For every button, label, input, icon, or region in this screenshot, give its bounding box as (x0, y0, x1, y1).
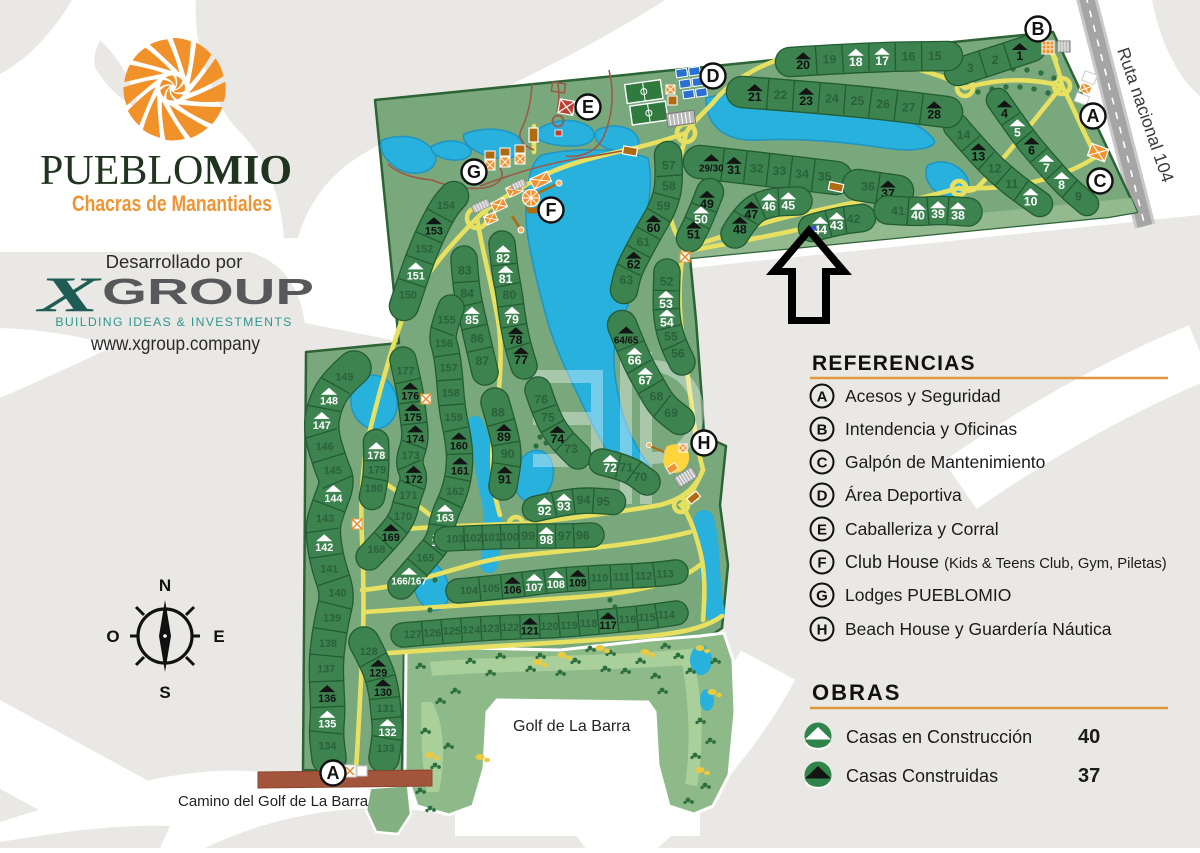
svg-text:7: 7 (1043, 161, 1050, 175)
svg-text:72: 72 (603, 461, 617, 475)
svg-text:179: 179 (368, 465, 386, 477)
svg-text:Acesos y Seguridad: Acesos y Seguridad (845, 386, 1001, 406)
svg-text:96: 96 (576, 528, 590, 542)
svg-text:53: 53 (659, 297, 673, 311)
svg-text:40: 40 (1078, 726, 1100, 748)
svg-text:159: 159 (445, 412, 463, 424)
svg-text:73: 73 (564, 442, 578, 456)
svg-text:142: 142 (315, 542, 333, 554)
svg-text:85: 85 (465, 313, 479, 327)
svg-text:155: 155 (437, 315, 455, 327)
svg-text:OBRAS: OBRAS (812, 680, 901, 705)
svg-text:174: 174 (406, 433, 424, 445)
svg-text:141: 141 (320, 563, 338, 575)
svg-text:139: 139 (323, 613, 341, 625)
svg-text:A: A (817, 389, 828, 406)
svg-text:92: 92 (538, 504, 552, 518)
svg-text:Golf de La Barra: Golf de La Barra (513, 718, 631, 735)
svg-text:Lodges PUEBLOMIO: Lodges PUEBLOMIO (845, 585, 1011, 605)
svg-text:74: 74 (551, 432, 565, 446)
svg-text:BUILDING IDEAS & INVESTMENTS: BUILDING IDEAS & INVESTMENTS (55, 315, 292, 329)
svg-text:140: 140 (328, 588, 346, 600)
svg-text:40: 40 (911, 209, 925, 223)
svg-text:19: 19 (823, 53, 837, 67)
svg-text:170: 170 (394, 511, 412, 523)
svg-text:149: 149 (335, 372, 353, 384)
svg-text:8: 8 (1058, 178, 1065, 192)
svg-text:G: G (467, 162, 481, 182)
svg-text:128: 128 (360, 646, 378, 658)
svg-text:B: B (817, 422, 828, 439)
svg-text:84: 84 (460, 286, 474, 300)
svg-text:29/30: 29/30 (699, 163, 724, 174)
svg-text:4: 4 (1001, 106, 1008, 120)
svg-text:81: 81 (499, 272, 513, 286)
svg-text:104: 104 (460, 585, 478, 597)
svg-text:23: 23 (799, 94, 813, 108)
svg-text:25: 25 (851, 94, 865, 108)
svg-text:176: 176 (401, 391, 419, 403)
svg-text:177: 177 (396, 366, 414, 378)
svg-text:A: A (1087, 106, 1100, 126)
svg-text:D: D (817, 488, 828, 505)
svg-text:38: 38 (951, 208, 965, 222)
svg-text:157: 157 (440, 363, 458, 375)
svg-text:144: 144 (324, 493, 342, 505)
svg-text:20: 20 (796, 58, 810, 72)
svg-text:115: 115 (638, 612, 655, 624)
svg-text:60: 60 (647, 221, 661, 235)
svg-text:Área Deportiva: Área Deportiva (845, 485, 962, 505)
svg-text:168: 168 (367, 544, 385, 556)
svg-text:91: 91 (498, 472, 512, 486)
svg-text:146: 146 (316, 441, 334, 453)
svg-text:178: 178 (367, 450, 385, 462)
svg-text:45: 45 (781, 198, 795, 212)
svg-text:147: 147 (313, 420, 331, 432)
svg-text:113: 113 (656, 568, 673, 580)
svg-text:82: 82 (496, 251, 510, 265)
svg-text:110: 110 (591, 572, 608, 584)
svg-text:59: 59 (657, 199, 671, 213)
svg-text:111: 111 (613, 571, 630, 583)
svg-text:98: 98 (540, 533, 554, 547)
svg-text:Casas en Construcción: Casas en Construcción (846, 727, 1032, 747)
svg-text:135: 135 (318, 719, 336, 731)
svg-text:154: 154 (437, 200, 455, 212)
svg-text:E: E (213, 627, 224, 646)
svg-text:32: 32 (750, 162, 764, 176)
svg-text:62: 62 (627, 258, 641, 272)
svg-text:46: 46 (762, 200, 776, 214)
svg-text:129: 129 (369, 668, 387, 680)
svg-text:13: 13 (972, 149, 986, 163)
svg-text:133: 133 (377, 743, 395, 755)
svg-text:47: 47 (744, 208, 758, 222)
svg-text:43: 43 (830, 218, 844, 232)
svg-text:37: 37 (1078, 765, 1100, 787)
svg-text:169: 169 (382, 532, 400, 544)
svg-text:80: 80 (503, 288, 517, 302)
svg-text:PUEBLOMIO: PUEBLOMIO (40, 148, 292, 194)
svg-text:E: E (582, 97, 594, 117)
svg-text:100: 100 (501, 532, 519, 544)
svg-text:86: 86 (470, 331, 484, 345)
svg-text:69: 69 (664, 406, 678, 420)
svg-text:162: 162 (446, 486, 464, 498)
svg-text:9: 9 (1075, 190, 1082, 204)
svg-text:Camino del Golf de La Barra: Camino del Golf de La Barra (178, 793, 369, 810)
svg-text:28: 28 (927, 107, 941, 121)
svg-text:121: 121 (521, 626, 539, 638)
svg-text:15: 15 (928, 49, 942, 63)
svg-text:103: 103 (446, 534, 464, 546)
svg-text:134: 134 (318, 740, 336, 752)
svg-text:www.xgroup.company: www.xgroup.company (90, 334, 260, 355)
svg-text:175: 175 (404, 412, 422, 424)
svg-text:95: 95 (596, 494, 610, 508)
svg-text:11: 11 (1005, 177, 1018, 191)
svg-text:158: 158 (442, 387, 460, 399)
svg-text:54: 54 (660, 315, 674, 329)
svg-text:125: 125 (443, 626, 461, 638)
svg-text:Galpón de Mantenimiento: Galpón de Mantenimiento (845, 452, 1045, 472)
svg-text:2: 2 (992, 53, 999, 67)
svg-text:127: 127 (404, 629, 422, 641)
svg-text:F: F (817, 555, 826, 572)
svg-text:138: 138 (319, 638, 337, 650)
svg-text:61: 61 (636, 235, 650, 249)
svg-text:132: 132 (378, 727, 396, 739)
svg-text:Desarrollado por: Desarrollado por (106, 251, 243, 272)
svg-text:Casas Construidas: Casas Construidas (846, 766, 998, 786)
svg-text:1: 1 (1016, 49, 1023, 63)
svg-text:36: 36 (861, 180, 875, 194)
svg-text:33: 33 (773, 164, 787, 178)
svg-text:56: 56 (671, 347, 685, 361)
svg-text:90: 90 (501, 447, 515, 461)
svg-text:B: B (1032, 19, 1045, 39)
svg-text:5: 5 (1014, 125, 1021, 139)
svg-text:89: 89 (497, 430, 511, 444)
svg-text:114: 114 (658, 609, 675, 621)
svg-text:94: 94 (577, 493, 591, 507)
svg-text:41: 41 (891, 204, 905, 218)
svg-text:118: 118 (580, 618, 597, 630)
svg-text:163: 163 (436, 513, 454, 525)
svg-text:58: 58 (662, 179, 676, 193)
svg-text:105: 105 (482, 583, 500, 595)
svg-text:Beach House y Guardería Náutic: Beach House y Guardería Náutica (845, 619, 1112, 639)
svg-text:GROUP: GROUP (102, 271, 314, 312)
svg-text:161: 161 (451, 465, 469, 477)
svg-text:124: 124 (462, 624, 480, 636)
svg-text:64/65: 64/65 (614, 336, 639, 347)
svg-text:97: 97 (558, 529, 572, 543)
svg-text:165: 165 (416, 553, 434, 565)
svg-text:18: 18 (849, 55, 863, 69)
svg-text:131: 131 (377, 703, 395, 715)
svg-text:17: 17 (875, 54, 889, 68)
svg-text:10: 10 (1024, 194, 1038, 208)
svg-text:16: 16 (902, 50, 916, 64)
svg-text:180: 180 (365, 483, 383, 495)
svg-text:151: 151 (407, 270, 425, 282)
svg-text:12: 12 (988, 162, 1002, 176)
svg-text:101: 101 (483, 532, 501, 544)
svg-text:22: 22 (774, 88, 788, 102)
svg-text:71: 71 (620, 461, 634, 475)
svg-text:70: 70 (633, 470, 647, 484)
svg-text:52: 52 (660, 274, 674, 288)
svg-text:Intendencia y Oficinas: Intendencia y Oficinas (845, 419, 1017, 439)
svg-text:14: 14 (957, 128, 971, 142)
svg-text:126: 126 (423, 627, 441, 639)
svg-text:106: 106 (503, 585, 521, 597)
svg-text:A: A (327, 763, 340, 783)
svg-text:67: 67 (638, 374, 652, 388)
svg-text:148: 148 (320, 396, 338, 408)
svg-text:N: N (159, 576, 171, 595)
svg-text:E: E (817, 522, 827, 539)
svg-text:S: S (159, 683, 170, 702)
svg-text:76: 76 (534, 392, 548, 406)
svg-text:108: 108 (547, 579, 565, 591)
svg-text:D: D (707, 66, 720, 86)
svg-text:6: 6 (1028, 143, 1035, 157)
svg-text:153: 153 (425, 225, 443, 237)
svg-text:102: 102 (464, 533, 482, 545)
svg-text:24: 24 (825, 92, 839, 106)
svg-text:123: 123 (482, 623, 500, 635)
svg-text:57: 57 (662, 158, 676, 172)
svg-text:83: 83 (458, 264, 472, 278)
svg-text:F: F (546, 200, 557, 220)
svg-text:87: 87 (476, 354, 490, 368)
svg-text:51: 51 (687, 228, 701, 242)
svg-text:Chacras de Manantiales: Chacras de Manantiales (72, 191, 272, 216)
svg-text:C: C (1094, 171, 1107, 191)
svg-text:H: H (817, 622, 828, 639)
svg-text:160: 160 (450, 441, 468, 453)
svg-text:112: 112 (635, 570, 652, 582)
svg-text:55: 55 (664, 330, 678, 344)
svg-text:3: 3 (967, 61, 974, 75)
svg-text:99: 99 (521, 529, 535, 543)
svg-text:107: 107 (525, 582, 543, 594)
svg-text:122: 122 (501, 622, 519, 634)
svg-text:39: 39 (931, 207, 945, 221)
svg-text:26: 26 (876, 97, 890, 111)
svg-text:150: 150 (399, 289, 417, 301)
svg-text:77: 77 (514, 353, 528, 367)
svg-text:42: 42 (847, 212, 861, 226)
svg-text:78: 78 (509, 333, 523, 347)
svg-text:130: 130 (374, 687, 392, 699)
svg-text:119: 119 (560, 620, 577, 632)
svg-text:117: 117 (599, 620, 616, 632)
svg-text:34: 34 (795, 167, 809, 181)
svg-text:166/167: 166/167 (391, 577, 427, 588)
svg-text:137: 137 (317, 663, 335, 675)
svg-text:75: 75 (541, 411, 555, 425)
svg-text:48: 48 (733, 223, 747, 237)
svg-text:172: 172 (405, 474, 423, 486)
svg-text:21: 21 (748, 90, 762, 104)
svg-text:68: 68 (650, 389, 664, 403)
svg-text:79: 79 (505, 313, 519, 327)
svg-text:109: 109 (569, 578, 587, 590)
svg-text:171: 171 (399, 490, 417, 502)
svg-text:173: 173 (402, 450, 420, 462)
svg-text:145: 145 (324, 465, 342, 477)
svg-text:116: 116 (619, 614, 636, 626)
svg-text:88: 88 (491, 405, 505, 419)
svg-text:O: O (106, 627, 119, 646)
svg-text:C: C (817, 455, 828, 472)
svg-text:93: 93 (557, 500, 571, 514)
svg-text:REFERENCIAS: REFERENCIAS (812, 352, 976, 375)
svg-text:143: 143 (316, 513, 334, 525)
svg-text:120: 120 (540, 621, 558, 633)
svg-text:Caballeriza y Corral: Caballeriza y Corral (845, 519, 999, 539)
svg-text:27: 27 (902, 100, 916, 114)
svg-text:136: 136 (318, 693, 336, 705)
svg-text:63: 63 (619, 273, 633, 287)
svg-text:G: G (816, 588, 828, 605)
svg-text:66: 66 (628, 354, 642, 368)
svg-text:H: H (698, 433, 711, 453)
svg-text:31: 31 (727, 163, 741, 177)
svg-text:156: 156 (435, 338, 453, 350)
svg-text:152: 152 (415, 244, 433, 256)
